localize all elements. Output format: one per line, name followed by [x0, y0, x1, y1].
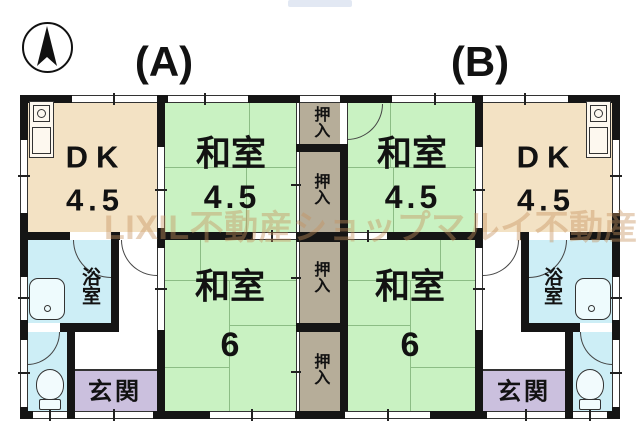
tick-mark — [434, 93, 436, 105]
wall — [60, 323, 119, 332]
tick-mark — [524, 93, 526, 105]
genkan-label-b: 玄関 — [497, 379, 551, 404]
room-label-dk-a: DK — [66, 142, 127, 175]
fusuma-door — [157, 147, 165, 228]
closet-outer-wall — [300, 95, 340, 103]
wall — [20, 323, 27, 332]
toilet-icon — [36, 369, 64, 400]
tick-mark — [251, 409, 253, 421]
wall — [570, 232, 620, 240]
tick-mark — [113, 93, 115, 105]
wall — [612, 213, 620, 277]
toilet-icon — [576, 369, 604, 400]
compass-icon — [22, 22, 73, 73]
tick-mark — [610, 297, 622, 299]
window — [168, 95, 248, 103]
tick-mark — [49, 409, 51, 421]
wall — [387, 232, 483, 240]
room-label-dk-b: DK — [517, 142, 578, 175]
tick-mark — [525, 409, 527, 421]
tatami-line — [165, 367, 229, 368]
floor-plan: (A) (B) DK 4.5 和室 4.5 和室 4.5 DK 4.5 和室 6… — [0, 0, 640, 439]
wall — [475, 95, 483, 147]
wall — [20, 232, 70, 240]
wall — [67, 411, 75, 419]
tick-mark — [113, 409, 115, 421]
tick-mark — [155, 288, 167, 290]
watermark-remnant — [288, 0, 352, 7]
genkan-label-a: 玄関 — [88, 379, 142, 404]
room-label-washitsu6-b: 和室 — [375, 270, 445, 307]
tick-mark — [18, 175, 30, 177]
closet-fusuma — [296, 242, 300, 323]
wall — [520, 232, 529, 240]
closet-label-4: 押入 — [311, 353, 328, 385]
wall — [157, 330, 165, 415]
hallway-b-lower — [521, 332, 565, 370]
wall — [521, 323, 580, 332]
hallway-a-lower — [75, 332, 119, 370]
bath-label-a: 浴室 — [79, 267, 99, 305]
room-size-dk-a: 4.5 — [66, 185, 124, 218]
wall — [20, 95, 28, 140]
closet-label-3: 押入 — [311, 261, 328, 293]
toilet-tank-icon — [579, 399, 601, 410]
room-size-washitsu6-b: 6 — [401, 328, 420, 364]
wall — [521, 240, 529, 332]
tick-mark — [367, 230, 369, 242]
wall — [565, 411, 573, 419]
bathtub-icon — [29, 278, 65, 320]
tick-mark — [610, 372, 622, 374]
wall — [296, 144, 348, 152]
stove-burner-icon — [594, 109, 603, 118]
tick-mark — [155, 189, 167, 191]
tatami-line — [410, 367, 475, 368]
tick-mark — [387, 409, 389, 421]
fusuma-door — [475, 147, 483, 228]
wall — [248, 95, 300, 103]
tick-mark — [473, 288, 485, 290]
room-size-washitsu6-a: 6 — [221, 328, 240, 364]
sink-icon — [32, 127, 51, 154]
closet-label-1: 押入 — [311, 106, 328, 138]
tick-mark — [291, 184, 301, 186]
wall — [67, 332, 75, 411]
room-label-washitsu6-a: 和室 — [195, 270, 265, 307]
fusuma-door — [253, 232, 296, 240]
wall — [612, 95, 620, 140]
wall — [157, 232, 253, 240]
closet-label-2: 押入 — [311, 173, 328, 205]
tick-mark — [291, 277, 301, 279]
closet-fusuma — [296, 152, 300, 232]
wall — [296, 323, 348, 332]
tick-mark — [473, 189, 485, 191]
bathtub-drain-icon — [44, 305, 51, 312]
wall — [111, 232, 120, 240]
wall — [20, 407, 28, 419]
window — [392, 95, 472, 103]
sink-icon — [589, 127, 608, 154]
wall — [612, 407, 620, 419]
tick-mark — [18, 372, 30, 374]
unit-a-label: (A) — [135, 40, 193, 84]
closet-door-opening — [340, 103, 348, 144]
room-size-washitsu45-a: 4.5 — [204, 181, 260, 215]
wall — [340, 95, 392, 103]
wall — [111, 240, 119, 332]
wall — [295, 411, 345, 419]
room-label-washitsu45-b: 和室 — [377, 137, 447, 174]
bathtub-icon — [575, 278, 611, 320]
room-size-washitsu45-b: 4.5 — [385, 181, 441, 215]
unit-b-label: (B) — [451, 40, 509, 84]
tick-mark — [271, 230, 273, 242]
toilet-tank-icon — [39, 399, 61, 410]
wall — [565, 332, 573, 411]
stove-burner-icon — [37, 109, 46, 118]
wall — [340, 144, 348, 411]
room-size-dk-b: 4.5 — [517, 185, 575, 218]
bath-label-b: 浴室 — [541, 267, 561, 305]
room-label-washitsu45-a: 和室 — [196, 137, 266, 174]
bathtub-drain-icon — [588, 305, 595, 312]
wall — [475, 330, 483, 415]
north-needle-icon — [24, 24, 70, 70]
genkan-step-line — [75, 369, 157, 371]
tick-mark — [204, 93, 206, 105]
tick-mark — [291, 371, 301, 373]
closet-fusuma — [296, 103, 300, 144]
tick-mark — [610, 175, 622, 177]
genkan-step-line — [483, 369, 565, 371]
wall — [157, 95, 165, 147]
wall — [20, 213, 28, 277]
wall — [613, 323, 620, 332]
tick-mark — [589, 409, 591, 421]
